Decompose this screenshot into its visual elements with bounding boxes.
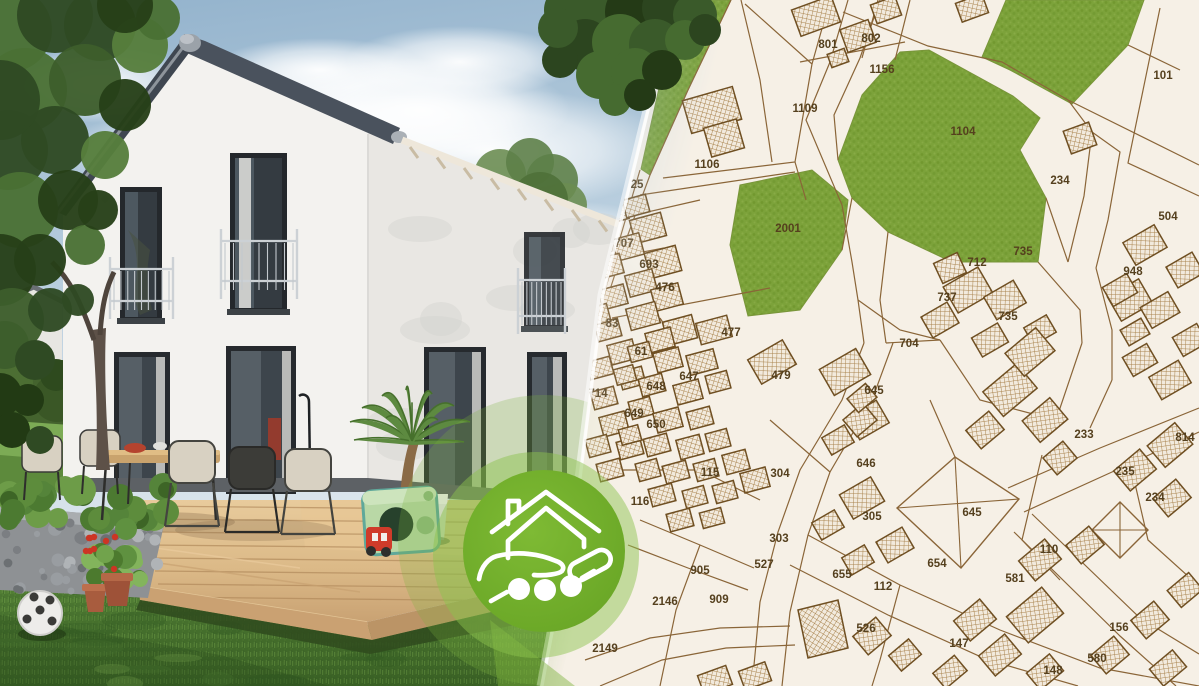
svg-text:648: 648	[646, 381, 666, 393]
svg-text:645: 645	[864, 385, 884, 397]
svg-text:112: 112	[874, 581, 893, 593]
svg-text:504: 504	[1158, 211, 1178, 223]
svg-text:645: 645	[962, 507, 982, 519]
svg-text:147: 147	[949, 638, 968, 650]
svg-text:646: 646	[856, 458, 875, 470]
svg-text:83: 83	[606, 318, 619, 330]
svg-text:650: 650	[646, 419, 665, 431]
svg-text:303: 303	[769, 533, 788, 545]
svg-text:115: 115	[701, 467, 720, 479]
svg-text:234: 234	[1145, 492, 1165, 504]
svg-text:1104: 1104	[951, 126, 977, 138]
svg-text:737: 737	[937, 292, 956, 304]
svg-text:655: 655	[832, 569, 852, 581]
svg-text:116: 116	[631, 496, 650, 508]
svg-text:1156: 1156	[870, 64, 895, 76]
svg-text:1109: 1109	[793, 103, 818, 115]
svg-text:110: 110	[1040, 544, 1059, 556]
svg-text:61: 61	[635, 346, 648, 358]
svg-text:235: 235	[1115, 466, 1135, 478]
svg-text:581: 581	[1005, 573, 1025, 585]
svg-text:1106: 1106	[695, 159, 720, 171]
svg-text:948: 948	[1123, 266, 1143, 278]
svg-text:2001: 2001	[775, 223, 801, 235]
svg-text:735: 735	[1013, 246, 1033, 258]
svg-text:233: 233	[1074, 429, 1093, 441]
svg-text:654: 654	[927, 558, 947, 570]
svg-text:909: 909	[709, 594, 728, 606]
svg-text:693: 693	[639, 259, 658, 271]
svg-text:802: 802	[861, 33, 880, 45]
svg-text:814: 814	[1175, 432, 1195, 444]
svg-text:527: 527	[754, 559, 773, 571]
svg-text:580: 580	[1087, 653, 1106, 665]
svg-text:156: 156	[1109, 622, 1128, 634]
svg-text:704: 704	[899, 338, 919, 350]
svg-text:2149: 2149	[592, 643, 618, 655]
svg-text:477: 477	[721, 327, 740, 339]
svg-text:2146: 2146	[652, 596, 678, 608]
svg-text:148: 148	[1043, 665, 1063, 677]
svg-text:234: 234	[1050, 175, 1070, 187]
svg-text:476: 476	[655, 282, 674, 294]
svg-text:649: 649	[624, 408, 643, 420]
svg-text:905: 905	[690, 565, 710, 577]
svg-text:101: 101	[1153, 70, 1173, 82]
svg-text:647: 647	[679, 371, 698, 383]
svg-text:304: 304	[770, 468, 790, 480]
svg-text:25: 25	[631, 179, 644, 191]
svg-text:479: 479	[771, 370, 790, 382]
svg-text:712: 712	[967, 257, 986, 269]
svg-text:801: 801	[818, 39, 838, 51]
svg-text:526: 526	[856, 623, 875, 635]
svg-text:735: 735	[998, 311, 1018, 323]
svg-text:305: 305	[862, 511, 882, 523]
